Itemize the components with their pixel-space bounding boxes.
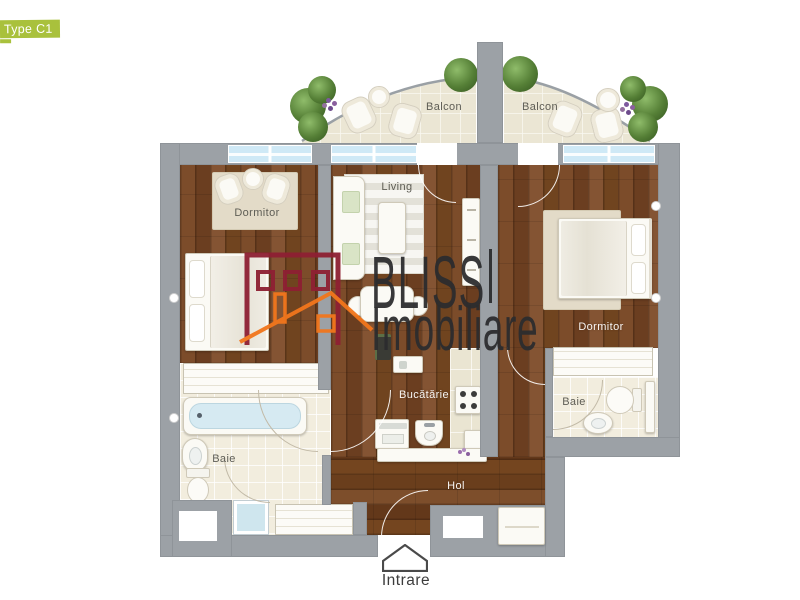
- plant-icon: [444, 58, 480, 94]
- balcony-table: [368, 86, 390, 108]
- entrance-arrow-icon: [382, 544, 428, 572]
- niche-bottom-right: [443, 516, 483, 538]
- bathroom-shelf-right: [645, 381, 655, 433]
- wall-right: [658, 143, 680, 457]
- window-bedroom-right: [563, 145, 655, 163]
- toilet-left: [184, 468, 212, 504]
- logo-building-icon: [225, 248, 375, 353]
- window-living: [331, 145, 417, 163]
- niche-bottom-left: [179, 511, 217, 541]
- side-table: [242, 168, 264, 190]
- entrance-label: Intrare: [382, 572, 430, 590]
- wall-lamp-icon: [652, 294, 660, 302]
- flowers-icon: [458, 450, 462, 454]
- wall-bath-right-south: [545, 437, 680, 457]
- plant-icon: [288, 76, 348, 142]
- wall-lamp-icon: [652, 202, 660, 210]
- hallway-cabinet-right: [498, 507, 545, 545]
- room-label-bedroom-right: Dormitor: [578, 321, 623, 333]
- wall-right-step: [545, 457, 565, 557]
- room-label-balcony-left: Balcon: [426, 101, 462, 113]
- stove: [455, 386, 481, 414]
- room-label-bathroom-right: Baie: [562, 396, 586, 408]
- balcony-column: [477, 42, 503, 143]
- wall-stub-entrance: [353, 502, 367, 535]
- badge-area-text: Suprafata construita: 84: [4, 40, 144, 55]
- logo-brand-subtext: Imobiliare: [371, 294, 538, 365]
- badge-area-unit: sqm: [4, 41, 21, 51]
- shower-square: [234, 501, 268, 534]
- room-label-balcony-right: Balcon: [522, 101, 558, 113]
- window-bedroom-left: [228, 145, 312, 163]
- floorplan-canvas: Balcon Balcon Dormitor Living Dormitor B…: [0, 0, 800, 600]
- badge-type-line: Type C1: [0, 20, 60, 39]
- wall-stub-bath-right: [545, 348, 553, 437]
- toilet-right: [606, 386, 644, 414]
- plant-icon: [612, 76, 670, 142]
- wall-left: [160, 143, 180, 557]
- wall-lamp-icon: [170, 294, 178, 302]
- kitchen-sink: [415, 420, 443, 446]
- room-label-bathroom-left: Baie: [212, 453, 236, 465]
- room-label-living: Living: [381, 181, 412, 193]
- room-label-bedroom-left: Dormitor: [234, 207, 279, 219]
- door-gap-bedroom-balcony: [518, 143, 558, 165]
- plant-icon: [502, 56, 540, 94]
- kitchen-counter-long: [377, 448, 487, 462]
- bed-right: [558, 218, 652, 299]
- room-label-kitchen: Bucătărie: [399, 389, 449, 401]
- badge-area-line: Suprafata construita: 84sqm: [0, 39, 11, 43]
- wall-bathroom-left-east: [322, 455, 331, 505]
- wardrobe-hallway: [275, 504, 353, 535]
- wall-lamp-icon: [170, 414, 178, 422]
- wardrobe-bedroom-right: [553, 347, 653, 376]
- room-label-hallway: Hol: [447, 480, 465, 492]
- bathroom-sink-left: [182, 438, 208, 472]
- door-gap-living-balcony: [417, 143, 457, 165]
- type-badge: Type C1 Suprafata construita: 84sqm: [0, 20, 60, 45]
